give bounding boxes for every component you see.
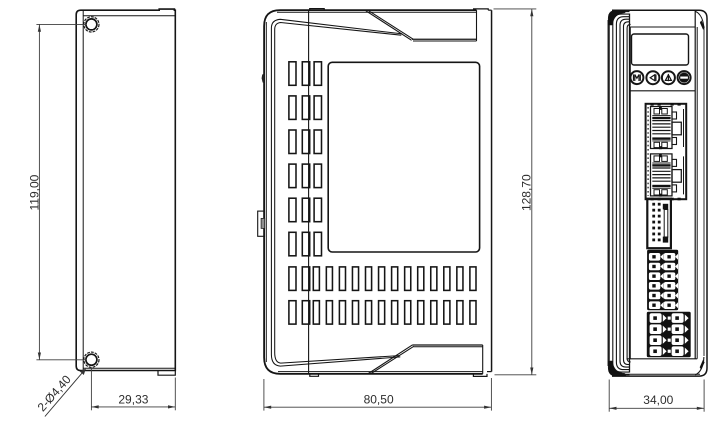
svg-text:2-Ø4,40: 2-Ø4,40 [35,372,74,414]
svg-text:119,00: 119,00 [27,174,41,210]
svg-text:29,33: 29,33 [118,392,148,406]
svg-text:80,50: 80,50 [364,392,394,406]
svg-text:128,70: 128,70 [520,174,534,211]
svg-text:34,00: 34,00 [643,393,673,407]
